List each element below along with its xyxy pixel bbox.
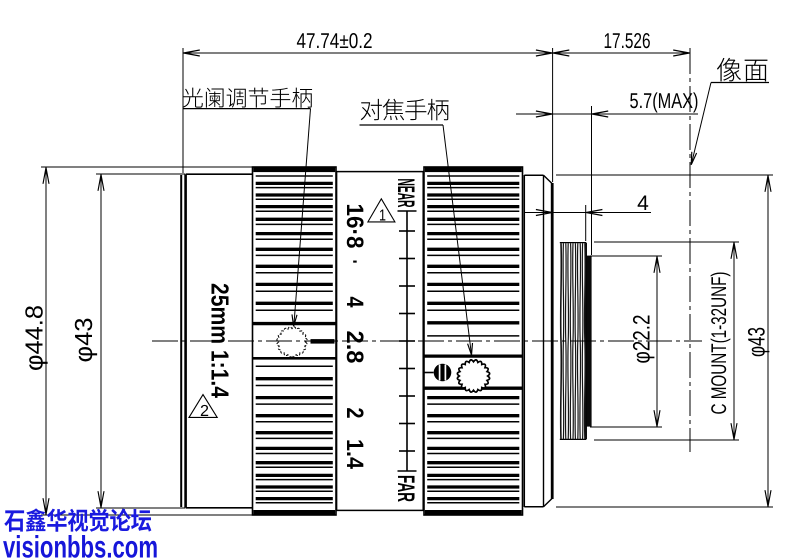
svg-text:φ22.2: φ22.2 <box>630 315 656 364</box>
svg-text:2: 2 <box>200 403 209 420</box>
svg-text:FAR: FAR <box>392 475 418 502</box>
svg-text:φ43: φ43 <box>745 327 771 357</box>
svg-text:1.4: 1.4 <box>341 439 367 469</box>
svg-text:1: 1 <box>379 208 386 225</box>
svg-text:47.74±0.2: 47.74±0.2 <box>297 29 373 53</box>
svg-text:4: 4 <box>341 297 367 308</box>
svg-text:4: 4 <box>637 192 649 215</box>
svg-text:·: · <box>341 260 367 265</box>
svg-text:NEAR: NEAR <box>392 179 418 208</box>
svg-text:2.8: 2.8 <box>341 331 367 364</box>
svg-text:C MOUNT(1-32UNF): C MOUNT(1-32UNF) <box>707 272 731 415</box>
svg-text:5.7(MAX): 5.7(MAX) <box>630 89 699 113</box>
svg-text:φ44.8: φ44.8 <box>22 305 49 371</box>
svg-text:16·8: 16·8 <box>341 204 367 249</box>
svg-text:φ43: φ43 <box>71 318 98 363</box>
svg-text:visionbbs.com: visionbbs.com <box>3 530 158 560</box>
svg-text:17.526: 17.526 <box>604 29 651 53</box>
svg-text:2: 2 <box>341 408 367 419</box>
